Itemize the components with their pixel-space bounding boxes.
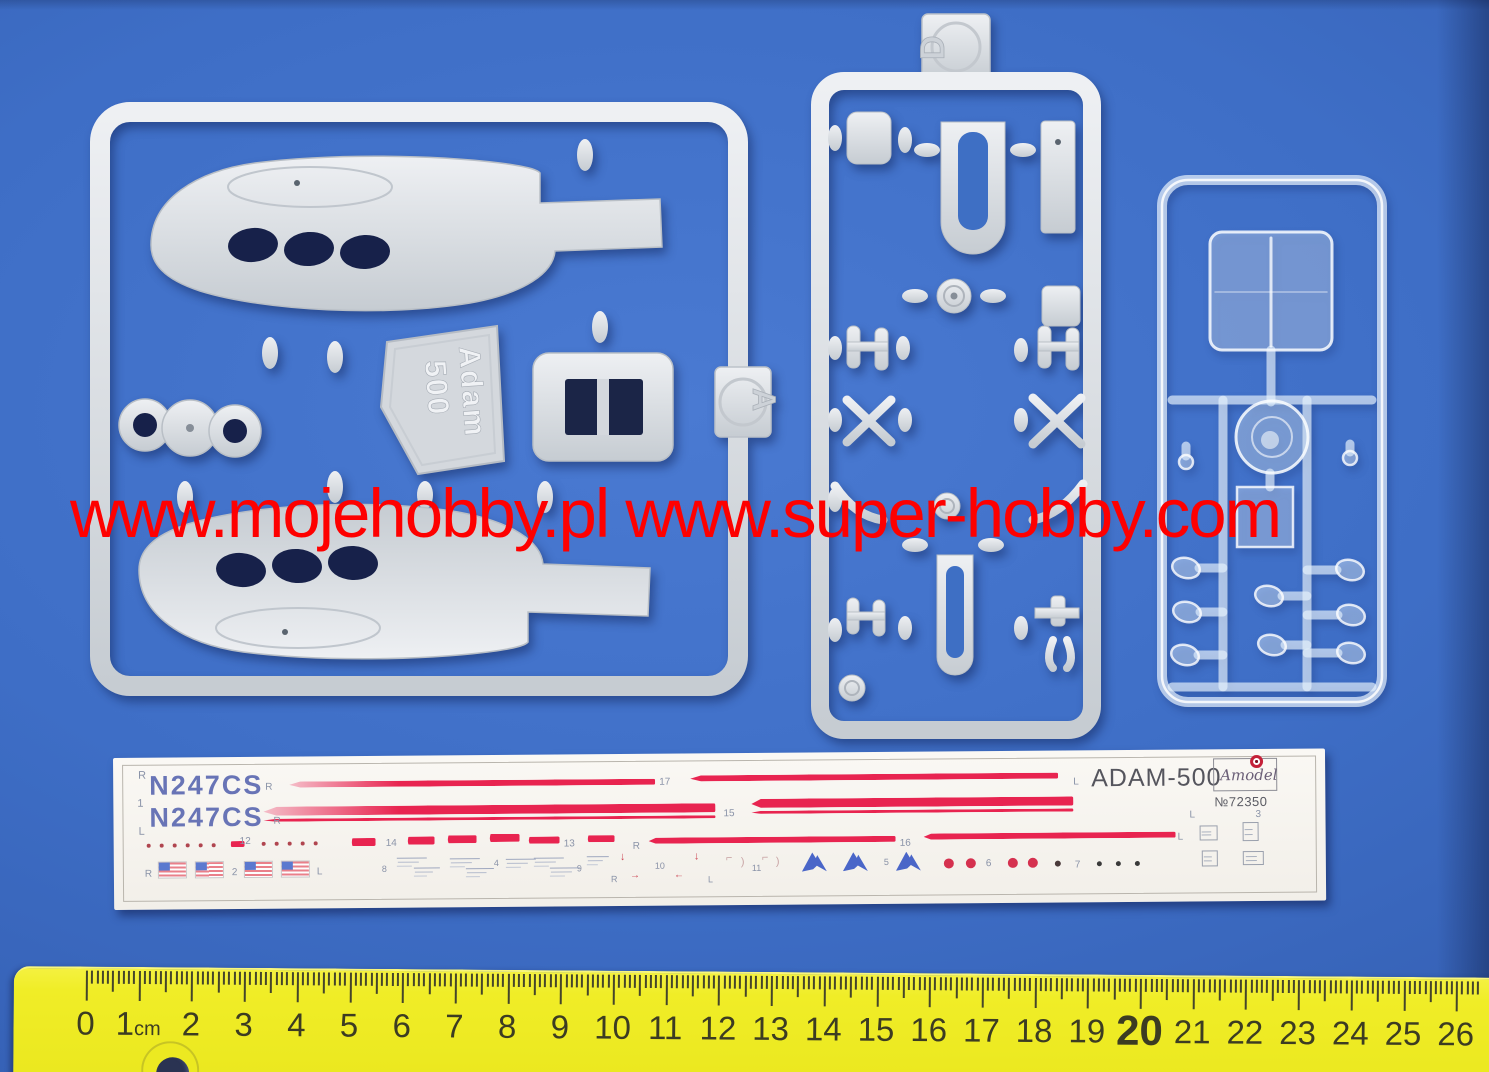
ruler-tick	[1092, 978, 1094, 991]
ruler-number: 12	[699, 1011, 736, 1044]
micro-text-decal	[414, 867, 440, 876]
micro-text-decal	[587, 856, 609, 865]
ruler-tick	[328, 972, 330, 985]
instrument-panel-decal	[1243, 822, 1259, 841]
sprue-d-letter: D	[914, 35, 952, 60]
ruler-tick	[887, 977, 889, 990]
ruler-tick	[1171, 979, 1173, 992]
decal-stripe	[289, 779, 655, 788]
decal-number-label: 16	[900, 839, 911, 849]
decal-stripe	[408, 836, 435, 844]
ruler-tick	[286, 972, 288, 985]
ruler-tick	[1314, 980, 1316, 993]
decal-dot	[944, 858, 954, 868]
instrument-panel-decal	[1200, 825, 1218, 840]
ruler-tick	[1214, 979, 1216, 992]
ruler-tick	[834, 976, 836, 989]
ruler-tick	[708, 975, 710, 988]
decal-stripe	[751, 796, 1073, 808]
ruler-tick	[961, 977, 963, 990]
decal-stripe	[751, 808, 1073, 814]
ruler-tick	[365, 973, 367, 986]
ruler-number: 16	[910, 1013, 947, 1046]
flag-decal	[159, 862, 186, 877]
ruler-tick	[486, 974, 488, 987]
ruler-tick	[439, 973, 441, 986]
decal-number-label: 3	[1255, 810, 1261, 820]
decal-dot	[301, 841, 305, 845]
ruler-tick	[265, 972, 267, 985]
nacelle-u-part	[941, 122, 1005, 254]
adam-aircraft-logo-decal	[843, 852, 868, 871]
decal-number-label: R	[145, 870, 152, 880]
ruler-tick	[1472, 981, 1474, 994]
ruler-tick	[197, 971, 199, 984]
catalog-number: №72350	[1214, 795, 1267, 808]
decal-number-label: L	[1178, 833, 1184, 843]
ruler-number: 13	[752, 1012, 789, 1045]
decal-stripe	[490, 834, 520, 842]
ruler-tick	[1308, 980, 1310, 993]
instrument-panel-decal	[1202, 850, 1218, 866]
decal-dot	[1116, 861, 1121, 866]
ruler-tick	[718, 976, 720, 1006]
ruler-tick	[1040, 978, 1042, 991]
ruler-tick	[1287, 980, 1289, 993]
decal-number-label: 12	[240, 837, 251, 847]
ruler-tick	[929, 977, 931, 1007]
ruler-tick	[1272, 980, 1274, 1001]
h-bracket-part-3	[847, 598, 885, 636]
ruler-tick	[1398, 981, 1400, 994]
ruler-tick	[392, 973, 394, 986]
ruler-tick	[1456, 981, 1458, 1011]
ruler-tick	[644, 975, 646, 988]
ruler-tick	[481, 974, 483, 995]
decal-number-label: ⌐	[726, 853, 733, 864]
ruler-tick	[228, 972, 230, 985]
ruler-tick	[291, 972, 293, 985]
decal-number-label: 2	[232, 868, 238, 878]
ruler-tick	[539, 974, 541, 987]
ruler-tick	[776, 976, 778, 989]
sprue-a-tag: A	[715, 367, 782, 437]
ruler-tick	[955, 977, 957, 998]
bulkhead-part	[110, 399, 261, 457]
ruler-tick	[1061, 978, 1063, 999]
ruler-tick	[186, 971, 188, 984]
ruler-tick	[202, 971, 204, 984]
ruler-tick	[117, 971, 119, 984]
ruler-number: 5	[340, 1009, 359, 1042]
ruler-number: 11	[648, 1011, 683, 1044]
decal-number-label: L	[708, 875, 713, 884]
ruler-tick	[998, 978, 1000, 991]
ruler-number: 22	[1226, 1016, 1263, 1049]
decal-sheet: R1LRR1715121413R16LLL3R2L849R10L11567↓↓→…	[113, 748, 1326, 910]
ruler-tick	[1050, 978, 1052, 991]
ruler-tick	[1382, 981, 1384, 994]
ruler-tick	[312, 972, 314, 985]
ruler-tick	[492, 974, 494, 987]
landing-light-lens-part	[1236, 401, 1308, 473]
adam-aircraft-logo-decal	[802, 852, 827, 871]
ruler-tick	[713, 975, 715, 988]
flag-decal	[245, 862, 272, 877]
ruler-tick	[1303, 980, 1305, 993]
ruler-tick	[797, 976, 799, 997]
decal-dot	[966, 858, 976, 868]
ruler-number: 20	[1116, 1010, 1163, 1052]
ruler-tick	[634, 975, 636, 988]
decal-stripe	[263, 815, 715, 822]
ruler-tick	[144, 971, 146, 984]
ruler-tick	[434, 973, 436, 986]
ruler-tick	[154, 971, 156, 984]
ruler-tick	[1156, 979, 1158, 992]
decal-dot	[199, 843, 203, 847]
ruler-tick	[323, 972, 325, 993]
ruler-tick	[1440, 981, 1442, 994]
decal-dot	[1097, 861, 1102, 866]
decal-dot	[147, 844, 151, 848]
ruler-tick	[112, 971, 114, 992]
ruler-number: 3	[234, 1008, 253, 1041]
ruler-tick	[1003, 978, 1005, 991]
sprue-d: D	[795, 0, 1115, 760]
decal-dot	[173, 844, 177, 848]
ruler-tick	[334, 973, 336, 986]
ruler-tick	[376, 973, 378, 994]
name-plate-part: Adam 500	[381, 326, 504, 474]
ruler-tick	[149, 971, 151, 984]
ruler-tick	[665, 975, 667, 1005]
instrument-panel-decal	[1243, 851, 1264, 865]
micro-text-decal	[450, 858, 480, 867]
ruler-tick	[940, 977, 942, 990]
clear-sprue	[1140, 160, 1410, 730]
ruler-tick	[897, 977, 899, 990]
ruler-tick	[845, 977, 847, 990]
micro-text-decal	[397, 858, 427, 867]
ruler-tick	[544, 974, 546, 987]
ruler-number: 18	[1016, 1014, 1053, 1047]
canopy-part	[1210, 232, 1332, 350]
ruler-tick	[1366, 981, 1368, 994]
ruler-tick	[813, 976, 815, 989]
ruler-tick	[992, 978, 994, 991]
ruler-number: 15	[858, 1013, 895, 1046]
ruler-tick	[602, 975, 604, 988]
ruler-tick	[1019, 978, 1021, 991]
ruler-tick	[1467, 981, 1469, 994]
decal-stripe	[690, 773, 1058, 782]
ruler-tick	[1229, 980, 1231, 993]
ruler-number: 26	[1437, 1017, 1474, 1050]
decal-number-label: ←	[674, 871, 684, 881]
decal-number-label: R	[611, 875, 618, 884]
brand-logo-box: Amodel	[1213, 758, 1277, 792]
ruler-tick	[423, 973, 425, 986]
ruler-tick	[1293, 980, 1295, 993]
ruler-tick	[1461, 981, 1463, 994]
ruler-tick	[418, 973, 420, 986]
ruler-tick	[1445, 981, 1447, 994]
flat-plate-part	[1041, 121, 1075, 233]
flag-decal	[196, 862, 223, 877]
ruler-tick	[344, 973, 346, 986]
ruler-tick	[381, 973, 383, 986]
ruler-number: 17	[963, 1013, 1000, 1046]
photo-background: Adam 500 A D	[0, 0, 1489, 1072]
ruler-number: 14	[805, 1012, 842, 1045]
ruler-tick	[212, 972, 214, 985]
ruler-tick	[1182, 979, 1184, 992]
ruler-tick	[1034, 978, 1036, 1008]
ruler-tick	[571, 974, 573, 987]
ruler-tick	[1250, 980, 1252, 993]
ruler-tick	[1103, 979, 1105, 992]
ruler-tick	[413, 973, 415, 986]
ruler-tick	[565, 974, 567, 987]
decal-number-label: 8	[382, 865, 387, 874]
ruler-tick	[281, 972, 283, 985]
ruler-tick	[207, 972, 209, 985]
ruler-tick	[1071, 978, 1073, 991]
ruler-tick	[1261, 980, 1263, 993]
ruler-tick	[1377, 981, 1379, 1002]
ruler-tick	[1298, 980, 1300, 1010]
ruler-tick	[1045, 978, 1047, 991]
decal-number-label: )	[741, 857, 745, 868]
decal-number-label: 15	[723, 809, 734, 819]
ruler-number: 23	[1279, 1016, 1316, 1049]
ruler-tick	[1356, 981, 1358, 994]
ruler-tick	[671, 975, 673, 988]
ruler-tick	[581, 974, 583, 987]
ruler-tick	[318, 972, 320, 985]
ruler-tick	[1192, 979, 1194, 1009]
ruler-tick	[507, 974, 509, 1004]
ruler-number: 21	[1174, 1015, 1211, 1048]
decal-dot	[160, 844, 164, 848]
ruler-tick	[724, 976, 726, 989]
decal-stripe	[924, 832, 1176, 840]
ruler-tick	[96, 971, 98, 984]
ruler-tick	[560, 974, 562, 1004]
h-bracket-part-2	[1038, 326, 1079, 370]
ruler-number: 19	[1068, 1014, 1105, 1047]
decal-dot	[1028, 858, 1038, 868]
decal-dot	[1055, 861, 1061, 867]
ruler-tick	[655, 975, 657, 988]
decal-number-label: 7	[1075, 860, 1081, 870]
ruler-tick	[465, 974, 467, 987]
ruler-tick	[1372, 981, 1374, 994]
ruler-tick	[1388, 981, 1390, 994]
ruler-tick	[976, 978, 978, 991]
ruler-tick	[502, 974, 504, 987]
decal-number-label: R	[265, 783, 272, 793]
ruler-tick	[1135, 979, 1137, 992]
ruler-tick	[1414, 981, 1416, 994]
ruler-tick	[133, 971, 135, 984]
decal-number-label: 11	[752, 864, 761, 873]
ruler-tick	[407, 973, 409, 986]
ruler-tick	[987, 978, 989, 991]
micro-text-decal	[550, 867, 580, 876]
ruler-tick	[1224, 980, 1226, 993]
ruler-tick	[386, 973, 388, 986]
decal-number-label: L	[317, 867, 323, 877]
ruler-tick	[1266, 980, 1268, 993]
small-block-part	[847, 112, 891, 164]
ruler-tick	[966, 977, 968, 990]
ruler-tick	[839, 976, 841, 989]
ruler-tick	[924, 977, 926, 990]
ruler-tick	[449, 973, 451, 986]
sprue-a: Adam 500 A	[85, 95, 785, 705]
ruler-tick	[1187, 979, 1189, 992]
ruler-tick	[428, 973, 430, 994]
ruler-tick	[534, 974, 536, 995]
ruler-tick	[1419, 981, 1421, 994]
ruler-tick	[745, 976, 747, 997]
ruler-tick	[1098, 979, 1100, 992]
decal-number-label: R	[273, 817, 280, 827]
ruler-tick	[550, 974, 552, 987]
ruler-tick	[307, 972, 309, 985]
ruler-tick	[576, 974, 578, 987]
micro-text-decal	[506, 859, 536, 868]
ruler-tick	[1013, 978, 1015, 991]
ruler: 01cm234567891011121314151617181920212223…	[13, 966, 1489, 1072]
ruler-tick	[175, 971, 177, 984]
decal-number-label: 14	[386, 839, 397, 849]
ruler-tick	[866, 977, 868, 990]
ruler-tick	[191, 971, 193, 1001]
ruler-tick	[1277, 980, 1279, 993]
ruler-number: 7	[445, 1009, 464, 1042]
decal-dot	[186, 843, 190, 847]
ruler-tick	[1245, 980, 1247, 1010]
ruler-tick	[613, 975, 615, 1005]
ruler-tick	[829, 976, 831, 989]
ruler-tick	[1124, 979, 1126, 992]
ruler-tick	[855, 977, 857, 990]
registration-decal-2: N247CS	[149, 804, 263, 832]
ruler-tick	[1350, 980, 1352, 1010]
ruler-tick	[702, 975, 704, 988]
ruler-tick	[697, 975, 699, 988]
ruler-tick	[1409, 981, 1411, 994]
ruler-tick	[1256, 980, 1258, 993]
decal-number-label: 5	[884, 858, 889, 867]
micro-text-decal	[466, 868, 494, 877]
decal-dot	[1008, 858, 1018, 868]
ruler-tick	[297, 972, 299, 1002]
decal-dot	[212, 843, 216, 847]
ruler-tick	[1430, 981, 1432, 1002]
ruler-tick	[1403, 981, 1405, 1011]
decal-number-label: L	[1073, 777, 1079, 787]
sprue-d-tag: D	[914, 14, 990, 80]
ruler-tick	[971, 978, 973, 991]
ruler-tick	[1424, 981, 1426, 994]
ruler-tick	[692, 975, 694, 996]
ruler-tick	[523, 974, 525, 987]
ruler-tick	[876, 977, 878, 1007]
brand-roundel-icon	[1250, 755, 1263, 768]
embossed-500-text: 500	[418, 359, 455, 417]
ruler-tick	[739, 976, 741, 989]
decal-stripe	[529, 836, 560, 843]
ruler-tick	[1219, 979, 1221, 1000]
ruler-tick	[1330, 980, 1332, 993]
ruler-tick	[1082, 978, 1084, 991]
ruler-unit-label: cm	[134, 1018, 161, 1040]
ruler-tick	[370, 973, 372, 986]
ruler-tick	[903, 977, 905, 998]
ruler-tick	[1140, 979, 1142, 1009]
ruler-tick	[1145, 979, 1147, 992]
ruler-tick	[476, 974, 478, 987]
ruler-tick	[808, 976, 810, 989]
ruler-tick	[254, 972, 256, 985]
ruler-tick	[982, 978, 984, 1008]
ruler-tick	[908, 977, 910, 990]
ruler-tick	[861, 977, 863, 990]
ruler-tick	[750, 976, 752, 989]
ruler-tick	[397, 973, 399, 986]
ruler-tick	[608, 975, 610, 988]
ruler-tick	[1066, 978, 1068, 991]
ruler-tick	[460, 974, 462, 987]
ruler-tick	[1008, 978, 1010, 999]
ruler-tick	[444, 973, 446, 986]
decal-number-label: 10	[655, 862, 665, 871]
ruler-tick	[218, 972, 220, 993]
ruler-number: 10	[594, 1011, 631, 1044]
ruler-tick	[513, 974, 515, 987]
decal-number-label: 6	[986, 859, 992, 869]
ruler-tick	[170, 971, 172, 984]
ruler-tick	[349, 973, 351, 1003]
ruler-tick	[1208, 979, 1210, 992]
ruler-tick	[1345, 980, 1347, 993]
sprue-a-letter: A	[746, 388, 782, 411]
ruler-tick	[1150, 979, 1152, 992]
decal-stripe	[448, 835, 477, 843]
ruler-tick	[1361, 981, 1363, 994]
ruler-tick	[850, 977, 852, 998]
decal-number-label: L	[1189, 811, 1195, 821]
gear-door-part	[1042, 286, 1080, 326]
ruler-tick	[913, 977, 915, 990]
ruler-tick	[181, 971, 183, 984]
ruler-tick	[1177, 979, 1179, 992]
nacelle-u-part-2	[937, 555, 973, 675]
decal-number-label: R	[138, 771, 146, 782]
decal-number-label: 17	[659, 778, 670, 788]
ruler-number: 8	[498, 1010, 517, 1043]
watermark-text: www.mojehobby.pl www.super-hobby.com	[70, 474, 1280, 553]
ruler-tick	[882, 977, 884, 990]
ruler-tick	[86, 971, 88, 1001]
decal-stripe	[588, 835, 615, 842]
ruler-tick	[1335, 980, 1337, 993]
ruler-number: 1cm	[116, 1007, 161, 1040]
